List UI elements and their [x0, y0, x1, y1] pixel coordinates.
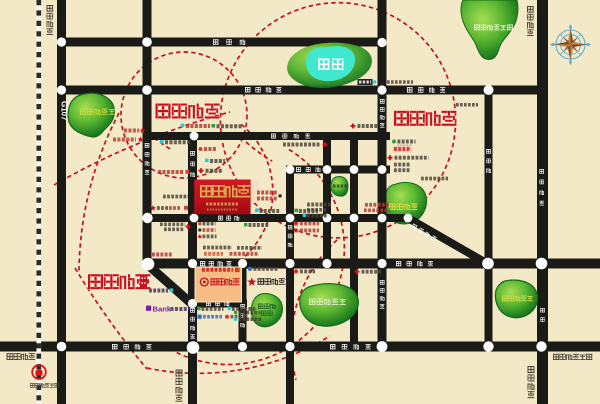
svg-text:Bank: Bank — [153, 305, 172, 314]
svg-text:G107: G107 — [60, 101, 69, 121]
